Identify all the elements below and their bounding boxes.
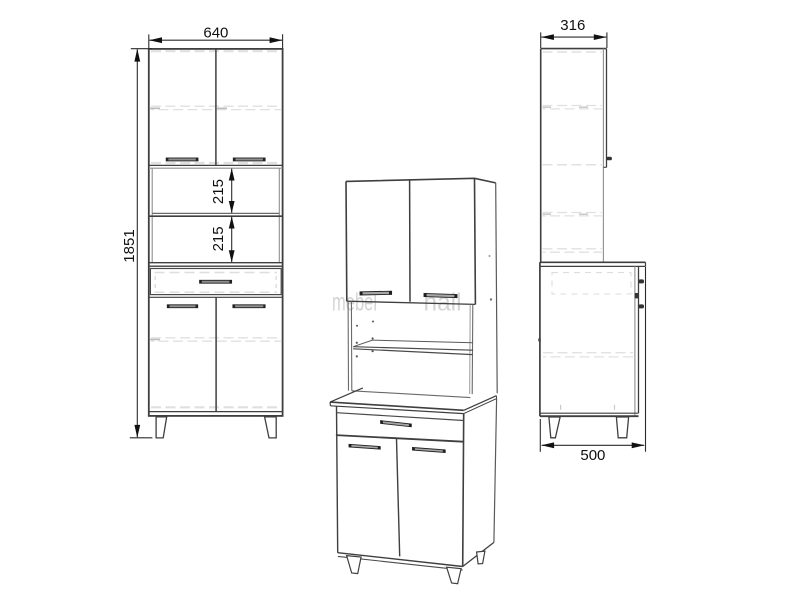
svg-text:1851: 1851 [121, 229, 138, 262]
svg-text:hall: hall [424, 289, 462, 317]
svg-text:215: 215 [210, 179, 227, 204]
svg-text:500: 500 [580, 447, 605, 464]
svg-text:316: 316 [560, 17, 585, 34]
svg-text:215: 215 [210, 226, 227, 251]
svg-text:640: 640 [203, 24, 228, 41]
